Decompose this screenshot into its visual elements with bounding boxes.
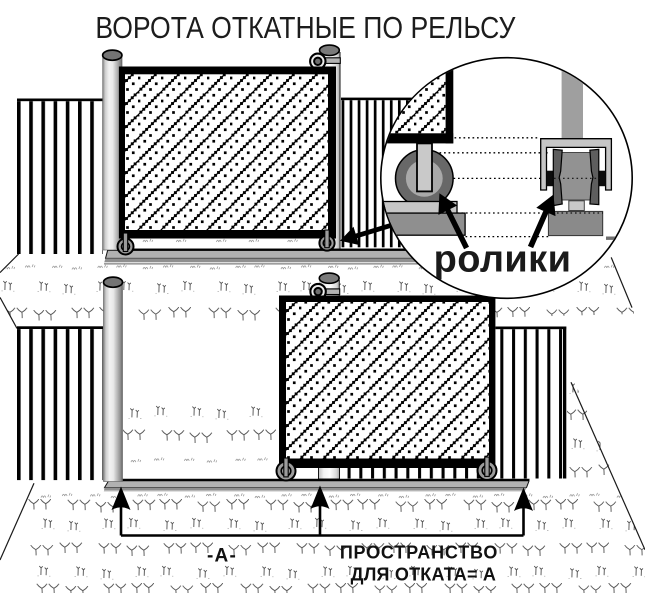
svg-text:ВОРОТА ОТКАТНЫЕ ПО РЕЛЬСУ: ВОРОТА ОТКАТНЫЕ ПО РЕЛЬСУ (95, 10, 515, 45)
svg-text:-А-: -А- (207, 546, 237, 567)
svg-text:ПРОСТРАНСТВО: ПРОСТРАНСТВО (340, 543, 498, 563)
svg-text:ДЛЯ ОТКАТА= А: ДЛЯ ОТКАТА= А (351, 565, 496, 585)
svg-text:ролики: ролики (434, 239, 572, 281)
